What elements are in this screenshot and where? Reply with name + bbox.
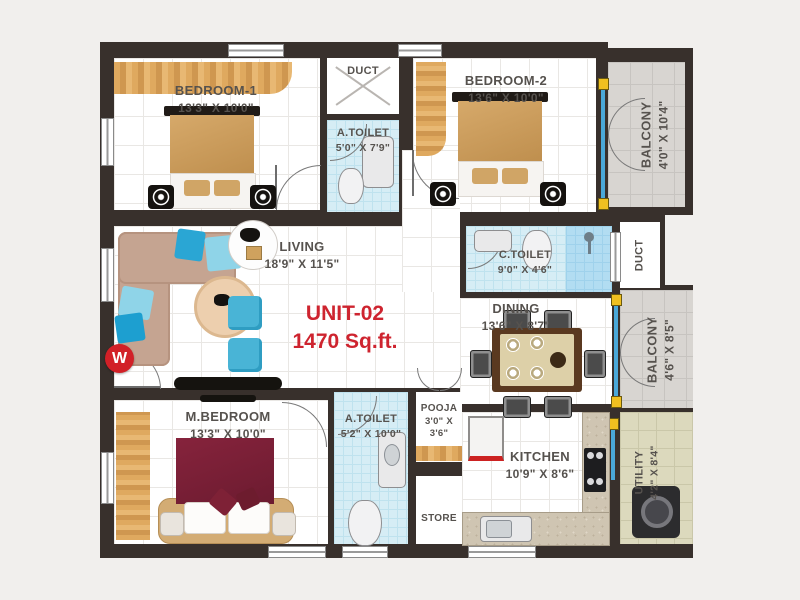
window-left-living (101, 248, 114, 302)
room-name: BALCONY (643, 317, 661, 383)
shower-pipe-icon (588, 240, 591, 254)
room-name: UTILITY (632, 446, 647, 500)
room-name: DUCT (633, 239, 648, 271)
room-name: DINING (436, 300, 596, 318)
window-bottom-atoilet2 (342, 546, 388, 558)
centerpiece (550, 352, 566, 368)
plate (506, 338, 520, 352)
window-top-bedroom2 (398, 44, 442, 57)
unit-label: UNIT-02 1470 Sq.ft. (245, 300, 445, 357)
wall-cap (598, 198, 609, 210)
room-name: BEDROOM-2 (416, 72, 596, 90)
bed1-cushion (214, 180, 240, 196)
plate (506, 366, 520, 380)
room-dims: 3'0" X 3'6" (416, 416, 462, 442)
label-atoilet2: A.TOILET 5'2" X 10'0" (334, 412, 408, 441)
window-bottom-mbedroom (268, 546, 326, 558)
door-leaf (412, 150, 414, 196)
room-dims: 18'9" X 11'5" (212, 256, 392, 272)
room-name: LIVING (212, 238, 392, 256)
label-balcony1: BALCONY 4'0" X 10'4" (622, 70, 686, 200)
dining-chair (544, 396, 572, 418)
nightstand (160, 512, 184, 536)
tv-stand (200, 395, 256, 402)
sink-bowl-atoilet2 (384, 444, 400, 466)
room-dims: 13'6" X 8'7" (436, 318, 596, 334)
room-dims: 13'3" X 10'0" (126, 100, 306, 116)
room-name: A.TOILET (334, 412, 408, 427)
room-dims: 4'0" X 10'4" (655, 101, 671, 170)
bed2-sheet (458, 161, 544, 197)
room-dims: 5'2" X 10'0" (334, 427, 408, 441)
label-balcony2-text: BALCONY 4'6" X 8'5" (643, 317, 677, 383)
bed2-cushion (502, 168, 528, 184)
kitchen-sink-basin (486, 520, 512, 538)
nightstand (272, 512, 296, 536)
dining-chair (470, 350, 492, 378)
sliding-door-balcony2 (614, 304, 618, 396)
label-duct-right: DUCT (620, 222, 660, 288)
speaker (148, 185, 174, 209)
label-bedroom2: BEDROOM-2 13'6" X 10'0" (416, 72, 596, 106)
window-top-bedroom1 (228, 44, 284, 57)
room-dims: 10'9" X 8'6" (452, 466, 628, 482)
dining-chair (503, 396, 531, 418)
speaker (540, 182, 566, 206)
floor-plan: W BEDROOM-1 13'3" X 10'0" DUCT A.TOILET … (0, 0, 800, 600)
bed2-blanket (458, 101, 542, 161)
window-left-bedroom1 (101, 118, 114, 166)
plate (530, 366, 544, 380)
label-dining: DINING 13'6" X 8'7" (436, 300, 596, 334)
label-ctoilet: C.TOILET 9'0" X 4'6" (470, 248, 580, 277)
room-name: POOJA (416, 402, 462, 416)
label-duct-top: DUCT (327, 58, 399, 84)
label-balcony2: BALCONY 4'6" X 8'5" (630, 296, 690, 404)
sofa-pillow (114, 312, 146, 344)
compass-west: W (105, 344, 134, 373)
wall-cap (611, 294, 622, 306)
dining-chair (584, 350, 606, 378)
speaker (250, 185, 276, 209)
door-leaf (114, 386, 160, 388)
bed2-cushion (472, 168, 498, 184)
speaker (430, 182, 456, 206)
wall-cap (611, 396, 622, 408)
label-pooja: POOJA 3'0" X 3'6" (416, 402, 462, 441)
bed1-sheet (170, 173, 256, 209)
label-utility-text: UTILITY 4'2" X 8'4" (632, 446, 661, 500)
room-dims: 13'6" X 10'0" (416, 90, 596, 106)
sofa-pillow (174, 228, 206, 262)
room-dims: 4'2" X 8'4" (647, 446, 661, 500)
room-name: M.BEDROOM (138, 408, 318, 426)
toilet-atoilet1 (338, 168, 364, 204)
label-store: STORE (416, 512, 462, 526)
bed1-blanket (170, 115, 254, 173)
compass-west-label: W (112, 350, 127, 368)
toilet-atoilet2 (348, 500, 382, 546)
label-utility: UTILITY 4'2" X 8'4" (618, 418, 676, 528)
room-name: DUCT (347, 64, 379, 79)
room-dims: 9'0" X 4'6" (470, 263, 580, 277)
room-dims: 5'0" X 7'9" (327, 141, 399, 155)
label-atoilet1: A.TOILET 5'0" X 7'9" (327, 126, 399, 155)
label-bedroom1: BEDROOM-1 13'3" X 10'0" (126, 82, 306, 116)
label-mbedroom: M.BEDROOM 13'3" X 10'0" (138, 408, 318, 442)
window-left-mbedroom (101, 452, 114, 504)
room-name: C.TOILET (470, 248, 580, 263)
room-dims: 13'3" X 10'0" (138, 426, 318, 442)
room-name: A.TOILET (327, 126, 399, 141)
room-name: BEDROOM-1 (126, 82, 306, 100)
room-dims: 4'6" X 8'5" (661, 317, 677, 383)
tv-unit (174, 377, 282, 390)
unit-area: 1470 Sq.ft. (245, 328, 445, 356)
room-name: KITCHEN (452, 448, 628, 466)
room-store-floor (416, 476, 462, 544)
bed1-cushion (184, 180, 210, 196)
label-living: LIVING 18'9" X 11'5" (212, 238, 392, 272)
unit-title: UNIT-02 (306, 302, 384, 325)
wall-cap (598, 78, 609, 90)
plate (530, 336, 544, 350)
room-name: STORE (416, 512, 462, 526)
sliding-door-balcony1 (601, 88, 605, 198)
room-name: BALCONY (637, 101, 655, 170)
label-balcony1-text: BALCONY 4'0" X 10'4" (637, 101, 671, 170)
label-kitchen: KITCHEN 10'9" X 8'6" (452, 448, 628, 482)
window-bottom-kitchen (468, 546, 536, 558)
